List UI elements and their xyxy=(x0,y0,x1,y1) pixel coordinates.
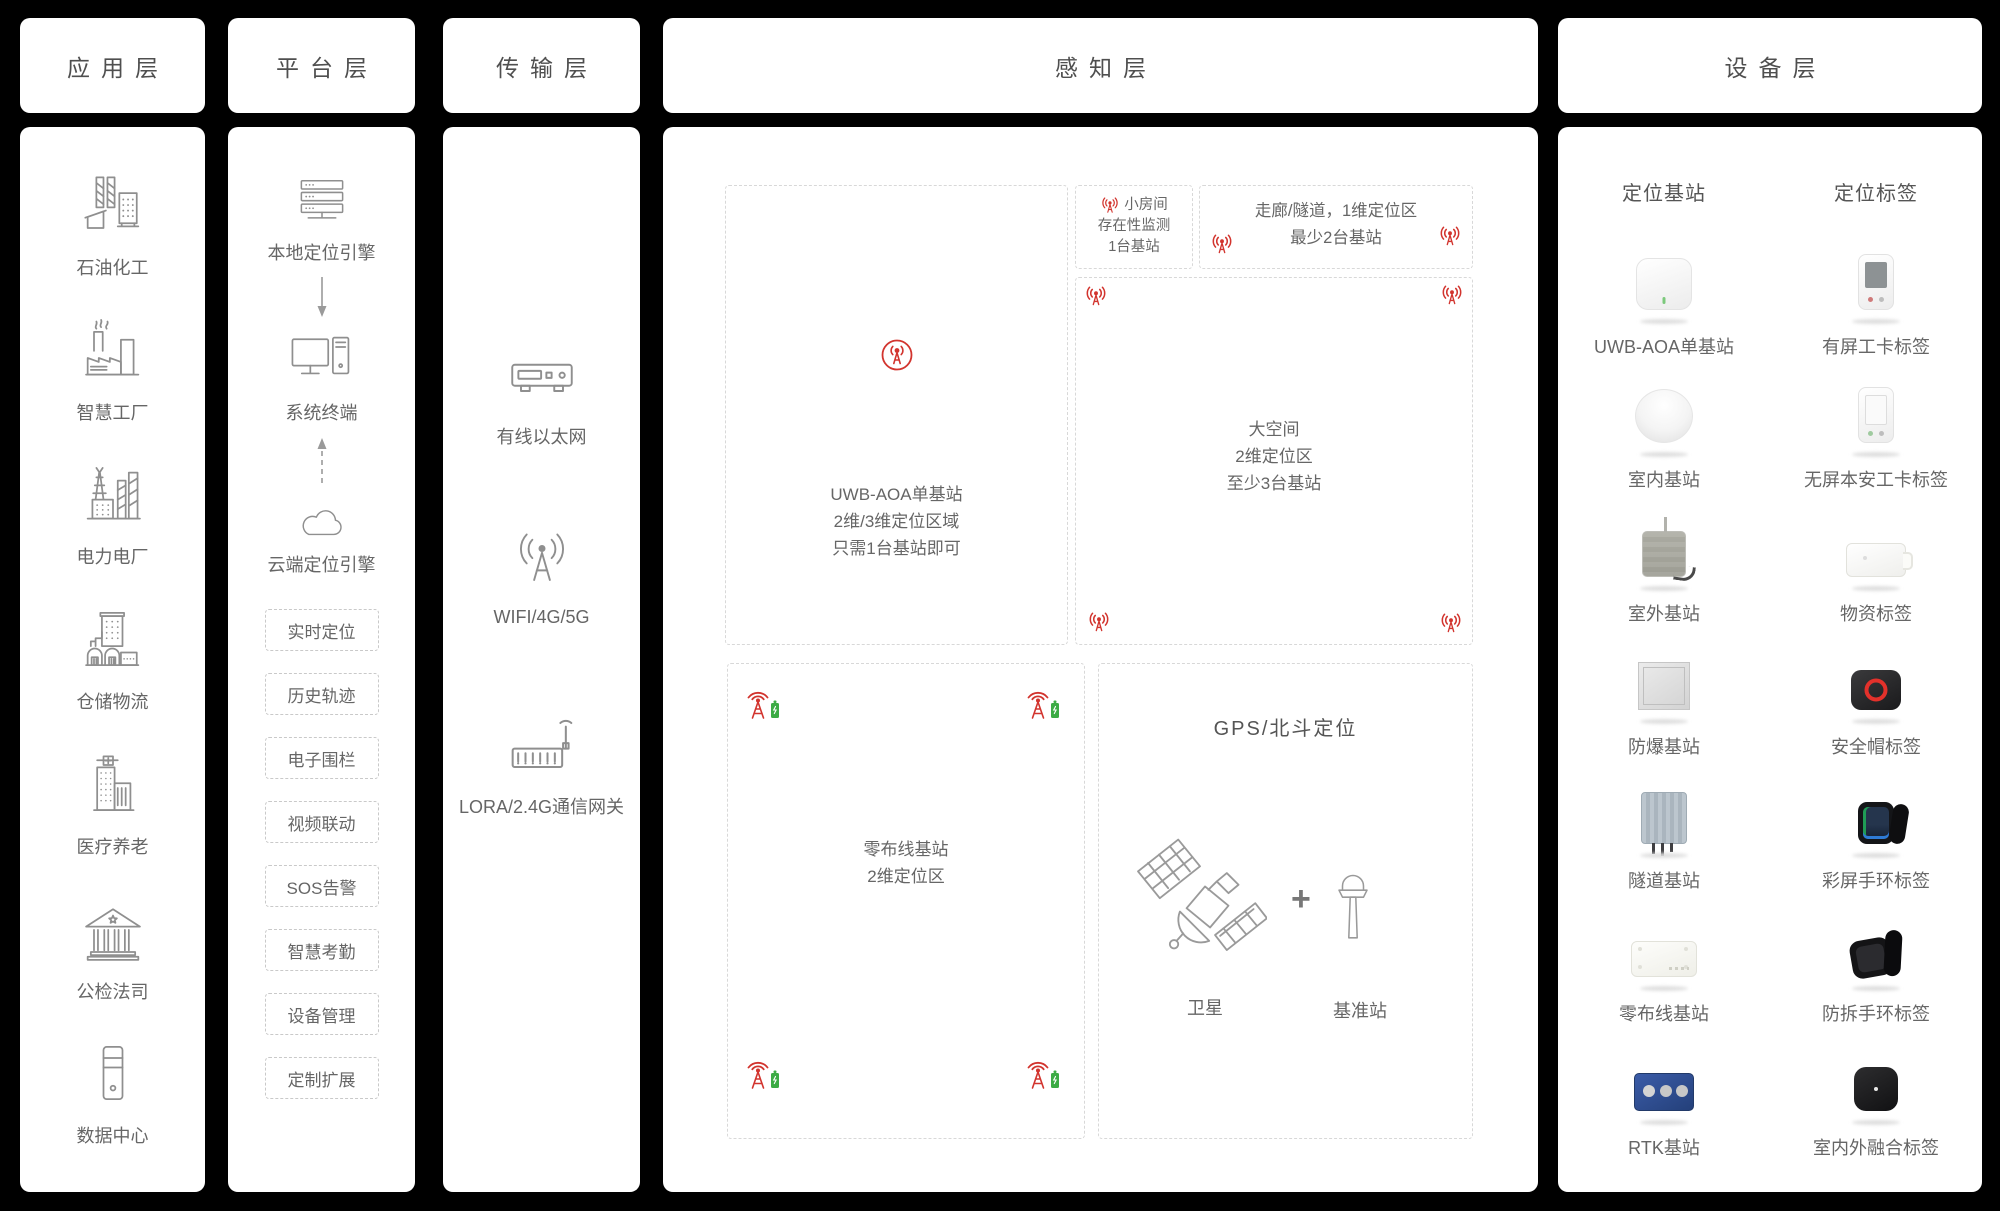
tower-antenna-battery-icon xyxy=(744,690,784,724)
shadow xyxy=(1852,586,1900,591)
shadow xyxy=(1640,1120,1688,1125)
large-space-text: 大空间 2维定位区 至少3台基站 xyxy=(1076,416,1472,497)
large-space-line2: 2维定位区 xyxy=(1076,443,1472,470)
shadow xyxy=(1852,319,1900,324)
application-layer-header: 应用层 xyxy=(20,18,205,113)
small-room-line3: 1台基站 xyxy=(1076,237,1192,258)
transmission-item-wifi: WIFI/4G/5G xyxy=(443,529,640,628)
shadow xyxy=(1852,853,1900,858)
app-item-power-plant: 电力电厂 xyxy=(71,460,155,569)
shadow xyxy=(1640,986,1688,991)
platform-feature-list: 实时定位 历史轨迹 电子围栏 视频联动 SOS告警 智慧考勤 设备管理 定制扩展 xyxy=(265,609,379,1099)
broadcast-antenna-icon xyxy=(1440,285,1464,307)
device-item: 室外基站 xyxy=(1558,498,1770,632)
ethernet-switch-icon xyxy=(500,355,584,411)
device-label: 隧道基站 xyxy=(1628,867,1700,893)
no-screen-badge-tag-photo xyxy=(1858,387,1894,443)
broadcast-antenna-icon xyxy=(1438,226,1462,248)
device-label: 无屏本安工卡标签 xyxy=(1804,466,1948,492)
uwb-zone-text: UWB-AOA单基站 2维/3维定位区域 只需1台基站即可 xyxy=(726,481,1067,562)
broadcast-antenna-icon xyxy=(1439,613,1463,635)
device-item: 有屏工卡标签 xyxy=(1770,231,1982,365)
device-item: 防爆基站 xyxy=(1558,632,1770,766)
transmission-layer-header: 传输层 xyxy=(443,18,640,113)
tunnel-base-station-photo xyxy=(1641,792,1687,844)
perception-layer-panel: UWB-AOA单基站 2维/3维定位区域 只需1台基站即可 小房间 存在性监测 … xyxy=(663,127,1538,1192)
app-item-label: 智慧工厂 xyxy=(77,399,149,425)
app-item-justice: 公检法司 xyxy=(71,895,155,1004)
uwb-zone-line2: 2维/3维定位区域 xyxy=(726,508,1067,535)
zero-wiring-base-station-photo xyxy=(1631,941,1697,977)
transmission-layer-panel: 有线以太网 WIFI/4G/5G LORA/2.4G通信网关 xyxy=(443,127,640,1192)
feature-device-management: 设备管理 xyxy=(265,993,379,1035)
indoor-outdoor-fusion-tag-photo xyxy=(1854,1067,1898,1111)
small-room-line1: 小房间 xyxy=(1076,186,1192,216)
color-screen-wristband-tag-photo xyxy=(1858,802,1894,844)
zero-wiring-line1: 零布线基站 xyxy=(728,836,1084,863)
zero-wiring-zone: 零布线基站 2维定位区 xyxy=(727,663,1085,1139)
tower-antenna-battery-icon xyxy=(1024,1060,1064,1094)
app-item-data-center: 数据中心 xyxy=(71,1039,155,1148)
zero-wiring-line2: 2维定位区 xyxy=(728,863,1084,890)
device-label: UWB-AOA单基站 xyxy=(1594,333,1734,359)
server-stack-icon xyxy=(289,171,355,229)
shadow xyxy=(1640,319,1688,324)
shadow xyxy=(1640,586,1688,591)
device-item: 安全帽标签 xyxy=(1770,632,1982,766)
dashed-arrow-up-icon xyxy=(315,437,329,483)
tag-column-title: 定位标签 xyxy=(1770,177,1982,206)
smart-factory-icon xyxy=(71,316,155,392)
tower-antenna-battery-icon xyxy=(744,1060,784,1094)
device-item: 无屏本安工卡标签 xyxy=(1770,365,1982,499)
rtk-base-station-photo xyxy=(1634,1073,1694,1111)
application-layer-panel: 石油化工 智慧工厂 电力电厂 仓储物流 医疗养老 公检法司 数据中心 xyxy=(20,127,205,1192)
device-grid: UWB-AOA单基站 有屏工卡标签 室内基站 无屏本安工卡标签 室外基站 xyxy=(1558,231,1982,1166)
uwb-aoa-base-station-photo xyxy=(1636,258,1692,310)
app-item-label: 电力电厂 xyxy=(77,543,149,569)
data-center-icon xyxy=(71,1039,155,1115)
cloud-engine-label: 云端定位引擎 xyxy=(268,551,376,577)
feature-sos-alarm: SOS告警 xyxy=(265,865,379,907)
perception-layer-header: 感知层 xyxy=(663,18,1538,113)
small-room-line2: 存在性监测 xyxy=(1076,216,1192,237)
device-label: 室内外融合标签 xyxy=(1813,1134,1939,1160)
transmission-label: WIFI/4G/5G xyxy=(493,607,589,628)
device-item: UWB-AOA单基站 xyxy=(1558,231,1770,365)
safety-helmet-tag-photo xyxy=(1851,670,1901,710)
app-item-medical: 医疗养老 xyxy=(71,750,155,859)
app-item-smart-factory: 智慧工厂 xyxy=(71,316,155,425)
device-item: 室内外融合标签 xyxy=(1770,1032,1982,1166)
shadow xyxy=(1852,986,1900,991)
device-label: 防拆手环标签 xyxy=(1822,1000,1930,1026)
platform-layer-header: 平台层 xyxy=(228,18,415,113)
satellite-label: 卫星 xyxy=(1155,994,1255,1020)
transmission-label: 有线以太网 xyxy=(497,423,587,449)
asset-tag-photo xyxy=(1846,543,1906,577)
broadcast-antenna-icon xyxy=(1210,234,1234,256)
reference-station-label: 基准站 xyxy=(1305,997,1415,1023)
shadow xyxy=(1640,853,1688,858)
small-room-zone: 小房间 存在性监测 1台基站 xyxy=(1075,185,1193,269)
wifi-antenna-icon xyxy=(500,529,584,595)
plus-sign: + xyxy=(1291,880,1311,919)
satellite-icon xyxy=(1133,826,1267,972)
device-label: 有屏工卡标签 xyxy=(1822,333,1930,359)
broadcast-antenna-icon xyxy=(1084,286,1108,308)
system-terminal-icon xyxy=(282,333,362,389)
cloud-icon xyxy=(290,499,354,541)
shadow xyxy=(1852,719,1900,724)
indoor-base-station-photo xyxy=(1635,389,1693,443)
broadcast-antenna-icon xyxy=(1087,612,1111,634)
app-item-warehouse: 仓储物流 xyxy=(71,605,155,714)
large-space-line1: 大空间 xyxy=(1076,416,1472,443)
device-label: 物资标签 xyxy=(1840,600,1912,626)
warehouse-logistics-icon xyxy=(71,605,155,681)
corridor-zone: 走廊/隧道，1维定位区 最少2台基站 xyxy=(1199,185,1473,269)
power-plant-icon xyxy=(71,460,155,536)
feature-custom-extension: 定制扩展 xyxy=(265,1057,379,1099)
app-item-label: 数据中心 xyxy=(77,1122,149,1148)
shadow xyxy=(1640,452,1688,457)
device-item: 隧道基站 xyxy=(1558,765,1770,899)
app-item-label: 医疗养老 xyxy=(77,833,149,859)
shadow xyxy=(1640,719,1688,724)
feature-smart-attendance: 智慧考勤 xyxy=(265,929,379,971)
device-column-titles: 定位基站 定位标签 xyxy=(1558,177,1982,206)
platform-layer-panel: 本地定位引擎 系统终端 云端定位引擎 实时定位 历史轨迹 电子围栏 视频联动 S… xyxy=(228,127,415,1192)
feature-video-linkage: 视频联动 xyxy=(265,801,379,843)
large-space-zone: 大空间 2维定位区 至少3台基站 xyxy=(1075,277,1473,645)
positioning-system-architecture-diagram: 应用层 平台层 传输层 感知层 设备层 石油化工 智慧工厂 电力电厂 仓储物流 … xyxy=(0,0,2000,1211)
app-item-label: 仓储物流 xyxy=(77,688,149,714)
feature-geofence: 电子围栏 xyxy=(265,737,379,779)
device-label: 防爆基站 xyxy=(1628,733,1700,759)
small-room-title: 小房间 xyxy=(1124,195,1168,216)
corridor-zone-text: 走廊/隧道，1维定位区 最少2台基站 xyxy=(1200,186,1472,252)
circled-broadcast-antenna-icon xyxy=(880,338,914,372)
medical-eldercare-icon xyxy=(71,750,155,826)
zero-wiring-text: 零布线基站 2维定位区 xyxy=(728,836,1084,890)
large-space-line3: 至少3台基站 xyxy=(1076,470,1472,497)
uwb-zone-line1: UWB-AOA单基站 xyxy=(726,481,1067,508)
device-item: 室内基站 xyxy=(1558,365,1770,499)
base-station-column-title: 定位基站 xyxy=(1558,177,1770,206)
lora-gateway-icon xyxy=(498,719,586,781)
justice-court-icon xyxy=(71,895,155,971)
local-engine-label: 本地定位引擎 xyxy=(268,239,376,265)
device-item: 彩屏手环标签 xyxy=(1770,765,1982,899)
feature-history-track: 历史轨迹 xyxy=(265,673,379,715)
device-label: 零布线基站 xyxy=(1619,1000,1709,1026)
uwb-aoa-zone: UWB-AOA单基站 2维/3维定位区域 只需1台基站即可 xyxy=(725,185,1068,645)
device-label: 室内基站 xyxy=(1628,466,1700,492)
device-item: RTK基站 xyxy=(1558,1032,1770,1166)
reference-station-icon xyxy=(1325,858,1381,970)
shadow xyxy=(1852,452,1900,457)
uwb-zone-line3: 只需1台基站即可 xyxy=(726,535,1067,562)
gps-zone-title: GPS/北斗定位 xyxy=(1099,712,1472,741)
tower-antenna-battery-icon xyxy=(1024,690,1064,724)
device-label: 安全帽标签 xyxy=(1831,733,1921,759)
device-item: 物资标签 xyxy=(1770,498,1982,632)
arrow-down-icon xyxy=(315,277,329,317)
transmission-item-ethernet: 有线以太网 xyxy=(443,355,640,449)
corridor-line1: 走廊/隧道，1维定位区 xyxy=(1200,198,1472,225)
broadcast-antenna-icon xyxy=(1100,197,1120,215)
anti-tamper-wristband-tag-photo xyxy=(1848,936,1894,980)
screen-badge-tag-photo xyxy=(1858,254,1894,310)
transmission-item-lora: LORA/2.4G通信网关 xyxy=(443,719,640,819)
transmission-label: LORA/2.4G通信网关 xyxy=(459,793,624,819)
explosion-proof-base-station-photo xyxy=(1638,662,1690,710)
app-item-label: 公检法司 xyxy=(77,978,149,1004)
petrochemical-icon xyxy=(71,171,155,247)
device-label: 彩屏手环标签 xyxy=(1822,867,1930,893)
device-label: RTK基站 xyxy=(1628,1134,1700,1160)
terminal-label: 系统终端 xyxy=(286,399,358,425)
corridor-line2: 最少2台基站 xyxy=(1200,225,1472,252)
device-item: 防拆手环标签 xyxy=(1770,899,1982,1033)
device-item: 零布线基站 xyxy=(1558,899,1770,1033)
shadow xyxy=(1852,1120,1900,1125)
device-label: 室外基站 xyxy=(1628,600,1700,626)
app-item-petrochemical: 石油化工 xyxy=(71,171,155,280)
gps-beidou-zone: GPS/北斗定位 + 卫星 基准站 xyxy=(1098,663,1473,1139)
app-item-label: 石油化工 xyxy=(77,254,149,280)
outdoor-base-station-photo xyxy=(1642,531,1686,577)
device-layer-panel: 定位基站 定位标签 UWB-AOA单基站 有屏工卡标签 室内基站 xyxy=(1558,127,1982,1192)
feature-realtime-location: 实时定位 xyxy=(265,609,379,651)
device-layer-header: 设备层 xyxy=(1558,18,1982,113)
